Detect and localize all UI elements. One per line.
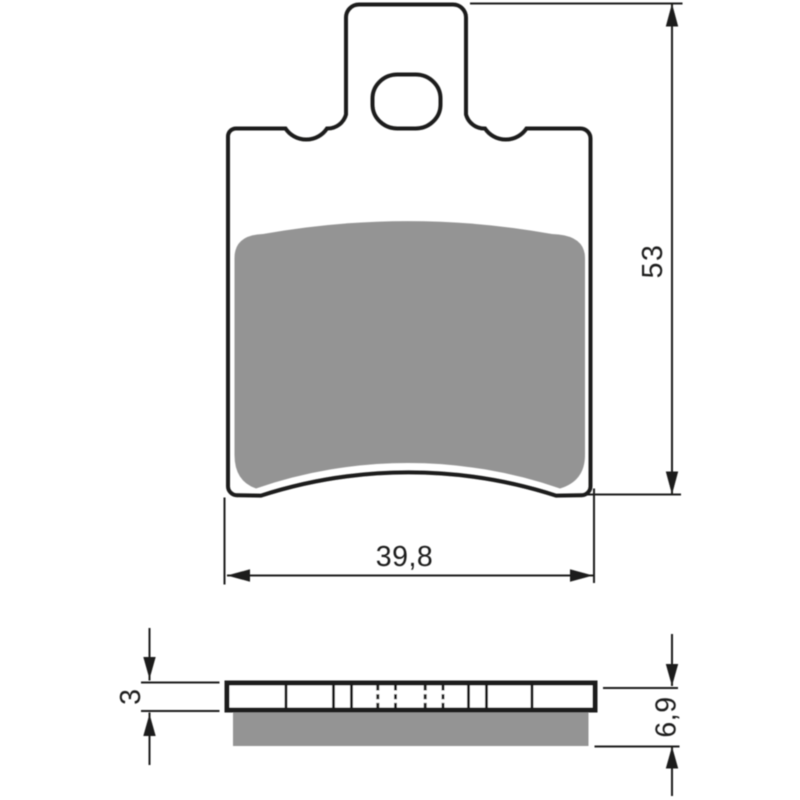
svg-text:6,9: 6,9: [651, 696, 683, 737]
svg-text:39,8: 39,8: [376, 541, 433, 573]
svg-text:53: 53: [637, 244, 669, 279]
svg-text:3: 3: [115, 689, 147, 705]
